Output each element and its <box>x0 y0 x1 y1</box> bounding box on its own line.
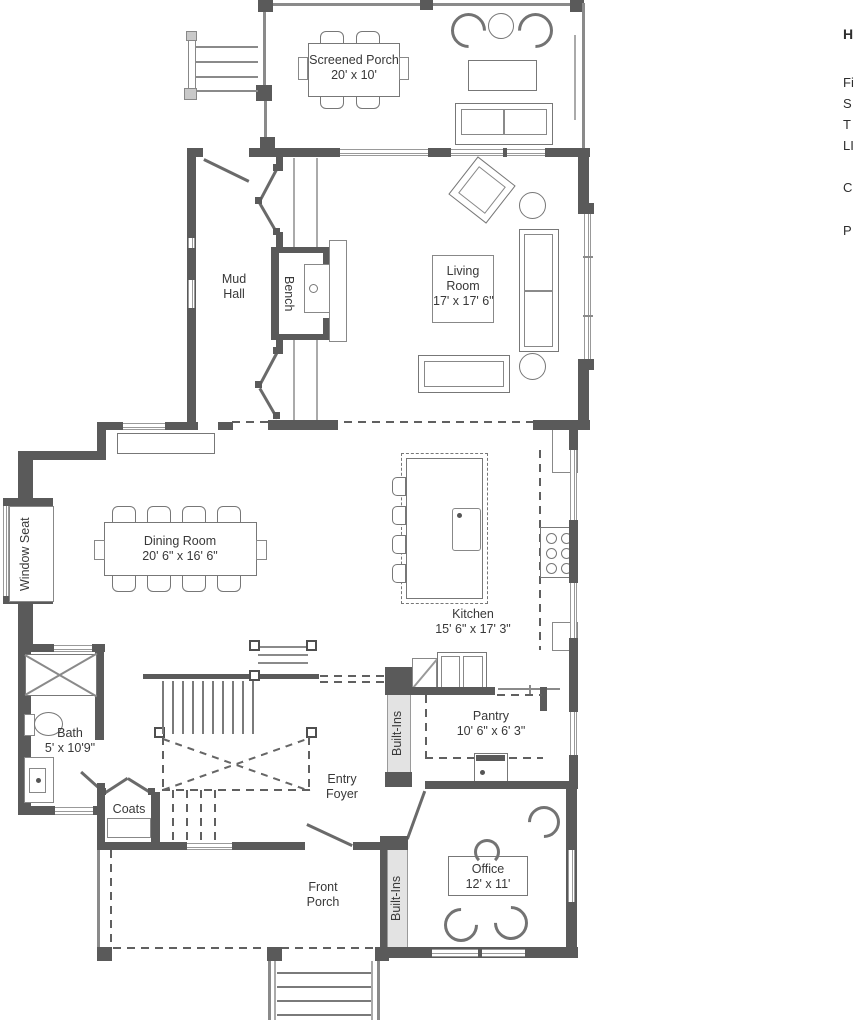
wall-segment <box>276 232 283 248</box>
deck-stair-tread <box>196 46 258 48</box>
front-steps <box>277 972 371 1020</box>
wall-segment <box>380 947 578 958</box>
wall-segment <box>187 148 203 157</box>
room-name: Front Porch <box>307 880 340 909</box>
chair <box>147 506 171 523</box>
wall-segment <box>165 422 198 430</box>
legend-item: Fi <box>843 75 854 90</box>
deck-stair-tread <box>196 76 258 78</box>
faucet <box>457 513 462 518</box>
room-label-mud-hall: Mud Hall <box>210 272 258 302</box>
room-label-front-porch: Front Porch <box>298 880 348 910</box>
window-mullion <box>583 315 593 317</box>
guest-chair <box>487 899 535 947</box>
floor-plan: Screened Porch 20' x 10' Mud Hall Bench <box>0 0 854 1020</box>
wall-segment <box>103 422 123 430</box>
room-name: Pantry <box>441 709 541 724</box>
wall-segment <box>545 148 590 157</box>
window-mullion <box>583 256 593 258</box>
newel-post <box>306 640 317 651</box>
landing-dash <box>308 737 310 790</box>
door-post <box>273 347 280 354</box>
burner <box>546 533 557 544</box>
wall-segment <box>97 793 105 845</box>
window <box>188 280 195 308</box>
stair-dash <box>172 790 174 842</box>
porch-dash <box>110 850 112 948</box>
room-dims: 12' x 11' <box>448 877 528 892</box>
room-label-dining-room: Dining Room 20' 6" x 16' 6" <box>125 534 235 564</box>
table-leaf <box>94 540 105 560</box>
stair-dash <box>200 790 202 842</box>
chair <box>356 96 380 109</box>
fridge-door <box>441 656 460 688</box>
room-label-screened-porch: Screened Porch 20' x 10' <box>306 53 402 83</box>
stool <box>392 564 406 583</box>
porch-rail <box>582 3 585 148</box>
stool <box>392 535 406 554</box>
wall-segment <box>569 638 578 712</box>
legend-item: T <box>843 117 851 132</box>
connector-dash <box>320 675 386 677</box>
firebox-knob <box>309 284 318 293</box>
pantry-dash <box>425 695 427 757</box>
porch-post <box>375 947 389 961</box>
room-dims: 17' x 17' 6" <box>433 294 493 309</box>
wall-segment <box>268 420 338 430</box>
round-table <box>519 192 546 219</box>
chair <box>217 575 241 592</box>
sofa-divider <box>503 109 505 135</box>
wall-segment <box>3 498 53 506</box>
wall-segment <box>385 687 495 695</box>
room-dims: 20' x 10' <box>306 68 402 83</box>
window <box>482 949 525 957</box>
window <box>570 450 577 520</box>
stool <box>392 477 406 496</box>
stair-dash <box>214 790 216 842</box>
step-rail <box>268 961 271 1020</box>
burner <box>546 563 557 574</box>
wall-segment <box>151 792 160 845</box>
pantry-dash <box>497 694 542 696</box>
chair <box>217 506 241 523</box>
chair <box>147 575 171 592</box>
stair-rail-line <box>258 654 308 656</box>
door-post <box>273 412 280 419</box>
wall-segment <box>540 687 547 711</box>
room-name: Dining Room <box>125 534 235 549</box>
door-post <box>273 164 280 171</box>
stair-rail <box>143 674 319 679</box>
round-table <box>519 353 546 380</box>
wall-segment <box>428 148 451 157</box>
guest-chair <box>437 901 485 949</box>
wall-segment <box>218 422 233 430</box>
chair <box>320 96 344 109</box>
wall-segment <box>232 842 305 850</box>
porch-rail <box>263 12 266 85</box>
legend-item: S <box>843 96 852 111</box>
room-label-bench: Bench <box>282 258 296 330</box>
front-door-swing <box>306 823 352 846</box>
vanity-faucet <box>36 778 41 783</box>
coats-shelf <box>107 818 151 838</box>
porch-post <box>258 0 273 12</box>
chair <box>112 506 136 523</box>
window <box>432 949 478 957</box>
porch-post <box>267 947 282 961</box>
legend-item: LI <box>843 138 854 153</box>
window <box>570 712 577 755</box>
newel-post <box>249 670 260 681</box>
chair <box>182 575 206 592</box>
porch-dash <box>99 947 379 949</box>
wall-segment <box>578 203 594 214</box>
stair-dash <box>186 790 188 842</box>
wall-segment <box>249 148 340 157</box>
chair <box>112 575 136 592</box>
chair <box>182 506 206 523</box>
room-label-built-ins-office: Built-Ins <box>389 856 403 941</box>
door-post <box>260 137 275 149</box>
window <box>55 807 93 815</box>
door-post <box>255 381 262 388</box>
room-name: Built-Ins <box>389 876 403 921</box>
wall-segment <box>385 772 412 787</box>
coffee-table-inner <box>424 361 504 387</box>
burner <box>546 548 557 559</box>
freezer-knob <box>480 770 485 775</box>
room-name: Bath <box>40 726 100 741</box>
coffee-table <box>468 60 537 91</box>
wall-segment <box>425 781 578 789</box>
room-label-living-room: Living Room 17' x 17' 6" <box>433 264 493 308</box>
wall-segment <box>533 420 590 430</box>
landing-dash <box>162 789 310 791</box>
deck-stair-tread <box>196 61 258 63</box>
window <box>187 843 232 850</box>
deck-stair-tread <box>196 90 258 92</box>
porch-edge <box>97 850 100 948</box>
porch-post <box>420 0 433 10</box>
fridge-door <box>463 656 483 688</box>
room-label-bath: Bath 5' x 10'9" <box>40 726 100 756</box>
window <box>451 149 503 156</box>
desk-chair <box>474 839 500 865</box>
wall-segment <box>569 430 578 450</box>
legend-item: P <box>843 223 852 238</box>
window <box>123 423 165 430</box>
room-label-office: Office 12' x 11' <box>448 862 528 892</box>
round-table <box>488 13 514 39</box>
room-name: Mud Hall <box>222 272 246 301</box>
newel-post <box>249 640 260 651</box>
wall-segment <box>97 842 187 850</box>
step-rail-inner <box>371 961 373 1020</box>
porch-post <box>97 947 112 961</box>
room-name: Window Seat <box>18 517 32 591</box>
window <box>340 149 428 156</box>
bench-wall <box>271 247 279 340</box>
window <box>54 645 92 652</box>
window <box>188 238 195 248</box>
armchair <box>444 6 493 55</box>
porch-screen-line <box>574 35 576 120</box>
window <box>570 583 577 638</box>
bifold-door <box>103 777 128 794</box>
room-name: Entry Foyer <box>326 772 358 801</box>
chair <box>320 31 344 44</box>
bay-window <box>584 214 591 360</box>
wall-segment <box>18 451 103 460</box>
door-swing <box>406 791 426 840</box>
fireplace <box>329 240 347 342</box>
room-dims: 15' 6" x 17' 3" <box>423 622 523 637</box>
stair-rail-line <box>258 662 308 664</box>
room-label-kitchen: Kitchen 15' 6" x 17' 3" <box>423 607 523 637</box>
room-dims: 5' x 10'9" <box>40 741 100 756</box>
wall-segment <box>353 842 408 850</box>
stool <box>392 506 406 525</box>
deck-stair-post <box>186 31 197 41</box>
freezer-top <box>476 755 505 761</box>
chair <box>356 31 380 44</box>
room-name: Coats <box>113 802 146 816</box>
room-name: Built-Ins <box>390 710 404 755</box>
window <box>507 149 545 156</box>
wall-segment <box>18 460 33 500</box>
step-rail-inner <box>274 961 276 1020</box>
room-name: Living Room <box>446 264 479 293</box>
buffet <box>117 433 215 454</box>
armchair-angled <box>448 156 515 223</box>
table-leaf <box>256 540 267 560</box>
door-post <box>255 197 262 204</box>
guest-chair <box>521 799 566 844</box>
wall-segment <box>578 157 589 209</box>
room-label-window-seat: Window Seat <box>18 508 32 600</box>
wall-segment <box>18 644 54 652</box>
room-name: Bench <box>282 276 296 311</box>
window <box>568 850 575 902</box>
room-label-pantry: Pantry 10' 6" x 6' 3" <box>441 709 541 739</box>
shelf-bracket <box>529 685 531 694</box>
wall-segment <box>578 368 589 425</box>
connector-dash <box>320 681 386 683</box>
door-swing <box>203 158 249 182</box>
room-label-built-ins-hall: Built-Ins <box>390 696 404 770</box>
armchair <box>511 6 560 55</box>
wall-segment <box>380 844 387 955</box>
wall-segment <box>569 520 578 583</box>
stair-rail-line <box>258 646 308 648</box>
room-dims: 20' 6" x 16' 6" <box>125 549 235 564</box>
room-label-coats: Coats <box>103 802 155 817</box>
landing-dash <box>162 737 164 790</box>
armchair-cushion <box>458 166 506 214</box>
stair-treads <box>162 681 254 734</box>
room-name: Kitchen <box>423 607 523 622</box>
legend-heading: H <box>843 26 853 42</box>
legend-item: C <box>843 180 852 195</box>
room-name: Screened Porch <box>306 53 402 68</box>
room-label-entry-foyer: Entry Foyer <box>315 772 369 802</box>
wall-segment <box>18 806 55 815</box>
room-dims: 10' 6" x 6' 3" <box>441 724 541 739</box>
step-rail <box>377 961 380 1020</box>
porch-post <box>256 85 272 101</box>
sofa-divider <box>524 290 553 292</box>
